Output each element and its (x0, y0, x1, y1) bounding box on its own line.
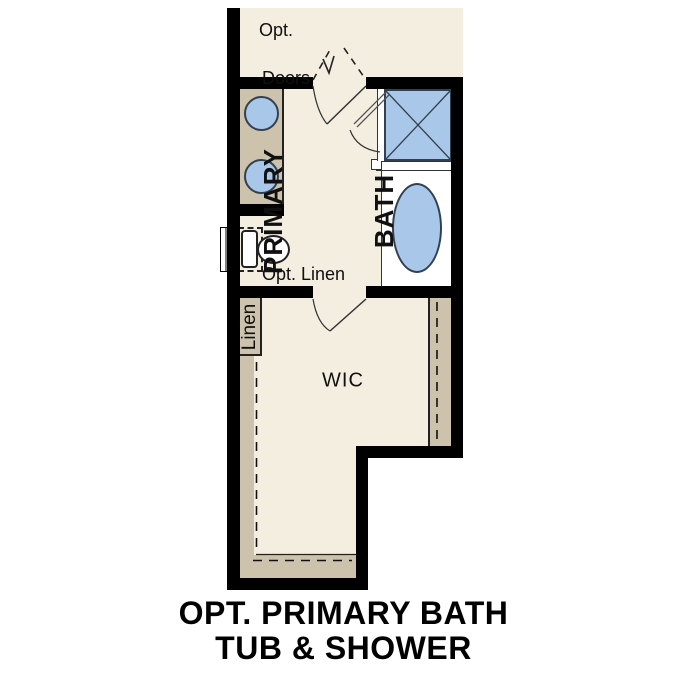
primary-bath-line1: PRIMARY (255, 148, 292, 274)
wic-shelf-left (240, 356, 254, 578)
opt-doors-line1: Opt. (259, 20, 293, 40)
opt-doors-line2: Doors (262, 68, 310, 88)
wic-shelf-right (428, 298, 452, 446)
plan-title: OPT. PRIMARY BATH TUB & SHOWER (0, 596, 687, 666)
wall-left (227, 8, 240, 590)
primary-bath-label: PRIMARY BATH (181, 148, 477, 274)
primary-bath-line2: BATH (366, 148, 403, 274)
wall-wic-notch-side (356, 446, 368, 590)
wall-wic-notch-top (356, 446, 463, 458)
wall-bath-wic-left (227, 286, 313, 298)
wall-entry-right (366, 77, 463, 89)
linen-label: Linen (239, 304, 261, 351)
opt-linen-label: Opt. Linen (262, 264, 345, 285)
plan-title-line2: TUB & SHOWER (0, 631, 687, 666)
wall-bottom (227, 578, 368, 590)
wic-label: WIC (322, 370, 364, 393)
sink-icon (244, 96, 279, 131)
opt-doors-label: Opt. Doors (238, 18, 314, 90)
wall-bath-wic-right (366, 286, 463, 298)
floor-plan: Opt. Doors PRIMARY BATH Opt. Linen Linen… (0, 0, 687, 687)
plan-title-line1: OPT. PRIMARY BATH (0, 596, 687, 631)
wic-shelf-bottom (240, 555, 356, 578)
